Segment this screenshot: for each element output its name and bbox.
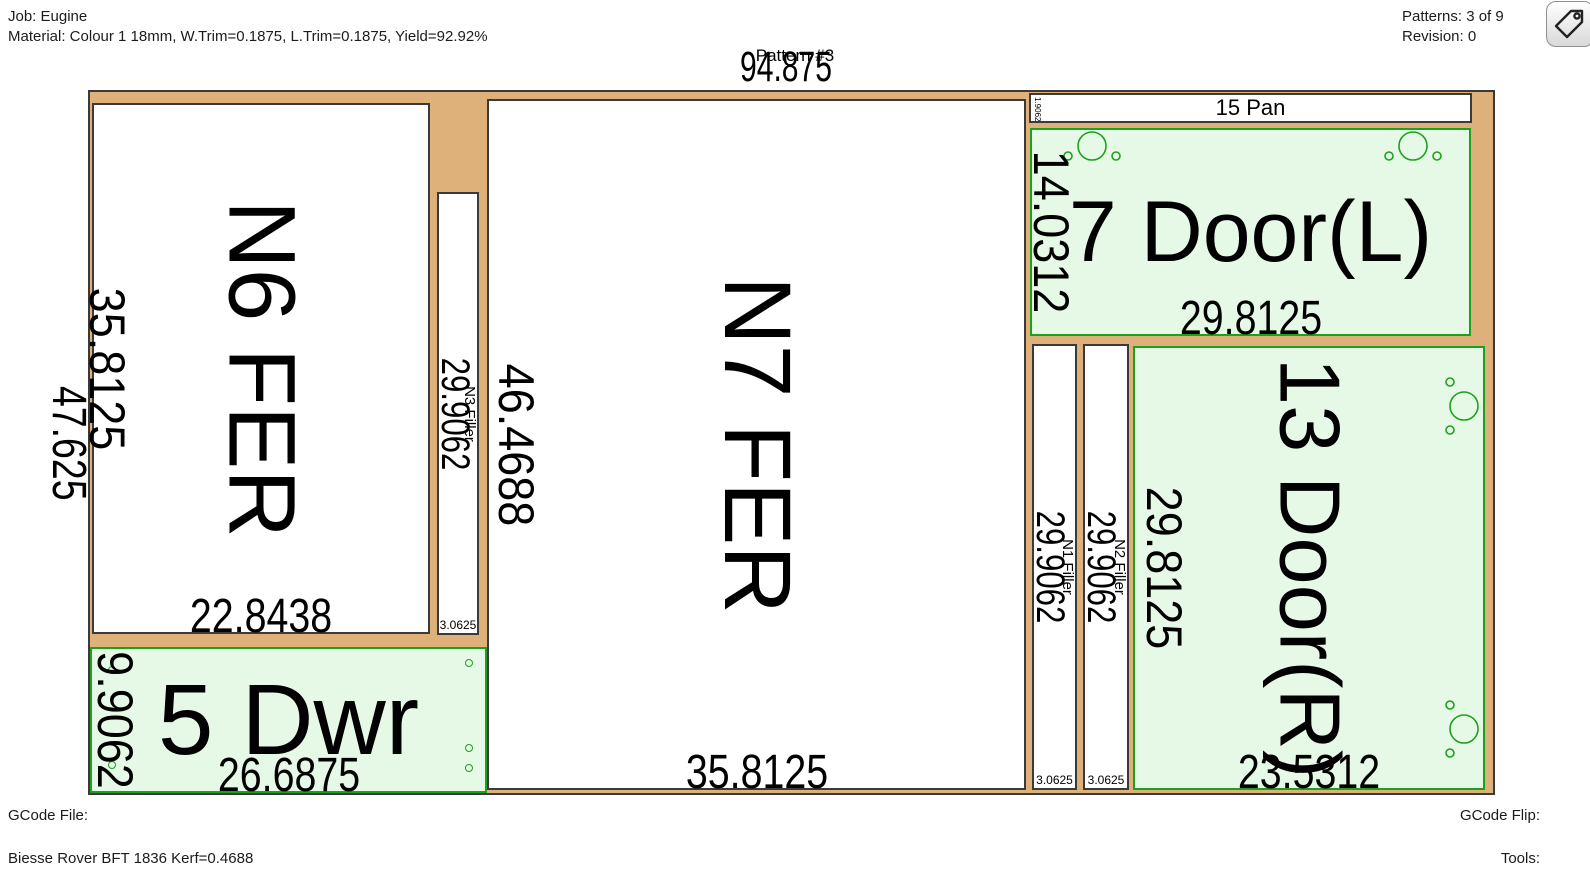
part-height-dim: 29.8125 [1139, 487, 1189, 650]
part-width-dim: 3.0625 [440, 619, 477, 631]
nesting-pattern-viewer: { "header": { "job": "Job: Eugine", "mat… [0, 0, 1590, 887]
part-label: 15 Pan [1031, 97, 1470, 119]
part-label: 13 Door(R) [1267, 358, 1352, 778]
part-width-dim: 3.0625 [1036, 774, 1073, 786]
drill-hole-icon [465, 764, 473, 772]
part-height-dim: 9.9062 [90, 651, 140, 789]
tag-button[interactable] [1546, 1, 1590, 47]
part-label: 7 Door(L) [1069, 189, 1432, 275]
part-width-dim: 26.6875 [217, 752, 359, 800]
part-label: N7 FER [709, 276, 804, 614]
job-text: Job: Eugine [8, 7, 87, 27]
part-width-dim: 23.5312 [1238, 749, 1380, 797]
hinge-bore-icon [1381, 128, 1445, 172]
part-width-dim: 29.8125 [1031, 119, 1470, 123]
part-5-drawer[interactable]: 5 Dwr 9.9062 26.6875 [90, 647, 487, 793]
drill-hole-icon [465, 659, 473, 667]
drill-hole-icon [465, 744, 473, 752]
part-n3-filler[interactable]: 29.9062 N3 Filler 3.0625 [437, 192, 479, 635]
sheet-canvas[interactable]: N6 FER 35.8125 22.8438 29.9062 N3 Filler… [88, 90, 1495, 795]
gcode-file-label: GCode File: [8, 806, 88, 826]
part-height-dim: 46.4688 [491, 363, 541, 526]
part-n2-filler[interactable]: 29.9062 N2 Filler 3.0625 [1083, 344, 1129, 790]
part-13-door-right[interactable]: 13 Door(R) 29.8125 23.5312 [1133, 346, 1485, 790]
part-7-door-left[interactable]: 7 Door(L) 14.0312 29.8125 [1030, 128, 1471, 336]
part-n7-fer[interactable]: N7 FER 46.4688 35.8125 [487, 99, 1026, 790]
machine-text: Biesse Rover BFT 1836 Kerf=0.4688 [8, 849, 253, 869]
part-15-pan[interactable]: 1.9062 15 Pan 29.8125 [1029, 93, 1472, 123]
revision-text: Revision: 0 [1402, 27, 1476, 47]
part-label: N1 Filler [1060, 539, 1075, 595]
part-width-dim: 3.0625 [1088, 774, 1125, 786]
hinge-bore-icon [1442, 374, 1482, 442]
part-n6-fer[interactable]: N6 FER 35.8125 22.8438 [92, 103, 430, 634]
part-height-dim: 35.8125 [82, 287, 132, 450]
tools-label: Tools: [1501, 849, 1540, 869]
part-label: N6 FER [214, 200, 309, 538]
part-width-dim: 22.8438 [190, 593, 332, 641]
part-height-dim: 14.0312 [1026, 151, 1076, 314]
part-width-dim: 29.8125 [1179, 295, 1321, 343]
pattern-title: Pattern #3 [685, 47, 905, 64]
part-label: N2 Filler [1112, 539, 1127, 595]
material-text: Material: Colour 1 18mm, W.Trim=0.1875, … [8, 27, 488, 47]
part-width-dim: 35.8125 [685, 749, 827, 797]
patterns-count: Patterns: 3 of 9 [1402, 7, 1504, 27]
gcode-flip-label: GCode Flip: [1460, 806, 1540, 826]
part-label: N3 Filler [462, 386, 477, 442]
hinge-bore-icon [1442, 697, 1482, 765]
part-n1-filler[interactable]: 29.9062 N1 Filler 3.0625 [1032, 344, 1077, 790]
